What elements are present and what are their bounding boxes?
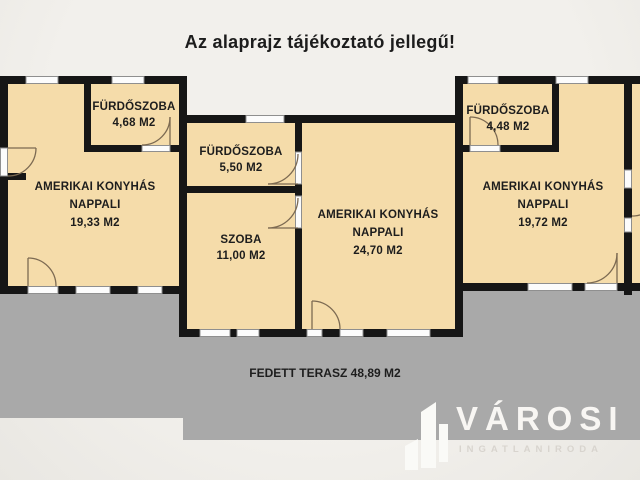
terrace-area-value: 48,89 M2 [351,366,401,380]
window [138,287,162,294]
window [26,77,58,84]
room-name: AMERIKAI KONYHÁS [462,178,624,196]
room-name: FÜRDŐSZOBA [186,144,296,160]
label-left-bathroom: FÜRDŐSZOBA 4,68 M2 [80,99,188,131]
label-middle-bathroom: FÜRDŐSZOBA 5,50 M2 [186,144,296,176]
window [528,284,572,291]
label-middle-room: SZOBA 11,00 M2 [186,232,296,264]
room-name: AMERIKAI KONYHÁS [300,206,456,224]
door-opening [28,287,58,294]
terrace-name: FEDETT TERASZ [249,366,347,380]
page-title: Az alaprajz tájékoztató jellegű! [0,32,640,53]
room-area: 24,70 M2 [300,242,456,260]
room-name: FÜRDŐSZOBA [80,99,188,115]
room-name: SZOBA [186,232,296,248]
room-area: 19,72 M2 [462,214,624,232]
logo-subtitle-text: INGATLANIRODA [459,444,603,455]
logo-brand-text: VÁROSI [456,400,625,438]
room-area: 4,48 M2 [455,119,561,135]
window [76,287,110,294]
window [237,330,259,337]
label-middle-living: AMERIKAI KONYHÁS NAPPALI 24,70 M2 [300,206,456,260]
room-area: 5,50 M2 [186,160,296,176]
label-right-bathroom: FÜRDŐSZOBA 4,48 M2 [455,103,561,135]
window [246,116,284,123]
room-name: NAPPALI [5,196,185,214]
window [340,330,363,337]
window [387,330,430,337]
door-opening [1,148,8,176]
floorplan-image: Az alaprajz tájékoztató jellegű! FÜRDŐSZ… [0,0,640,480]
room-name: NAPPALI [300,224,456,242]
room-name: AMERIKAI KONYHÁS [5,178,185,196]
label-terrace: FEDETT TERASZ 48,89 M2 [225,364,425,382]
room-name: FÜRDŐSZOBA [455,103,561,119]
room-area: 19,33 M2 [5,214,185,232]
room-name: NAPPALI [462,196,624,214]
door-opening [142,146,170,152]
window [112,77,144,84]
window [200,330,230,337]
door-opening [585,284,617,291]
room-area: 4,68 M2 [80,115,188,131]
label-left-living: AMERIKAI KONYHÁS NAPPALI 19,33 M2 [5,178,185,232]
window [556,77,588,84]
label-right-living: AMERIKAI KONYHÁS NAPPALI 19,72 M2 [462,178,624,232]
door-opening [470,146,500,152]
room-area: 11,00 M2 [186,248,296,264]
door-opening [625,170,632,188]
door-opening [625,218,632,232]
door-opening [307,330,322,337]
window [468,77,498,84]
